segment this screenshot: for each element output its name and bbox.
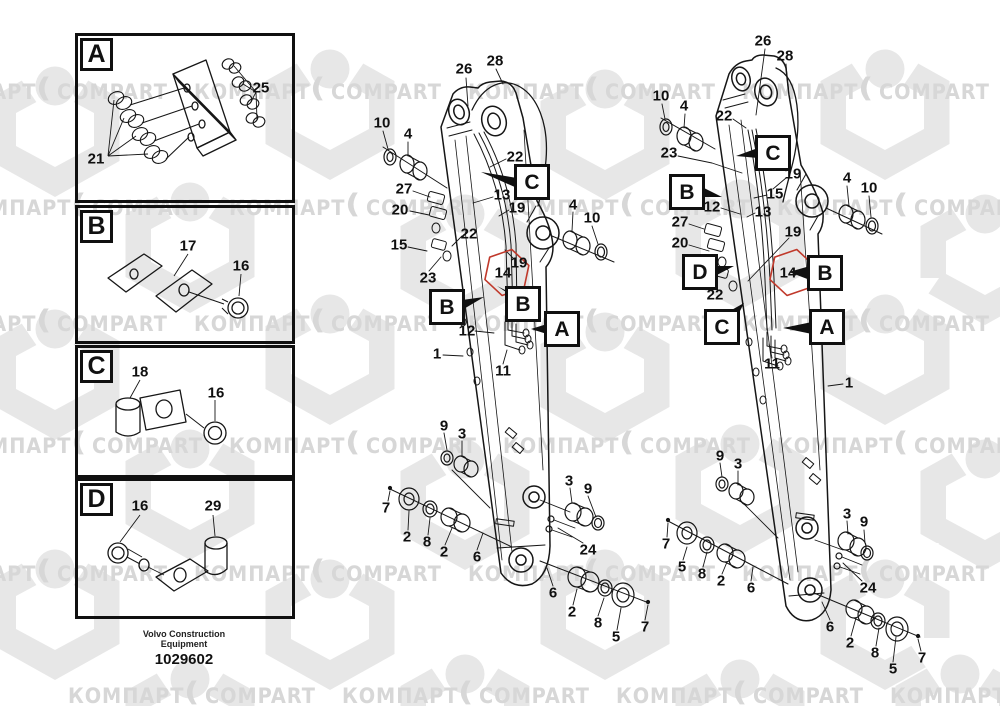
detail-d-part-16: 16 [132,498,149,515]
detail-a-part-21: 21 [88,151,105,168]
detail-letter-d: D [80,483,113,516]
detail-letter-a: A [80,38,113,71]
detail-d-part-29: 29 [205,498,222,515]
right-arm-pin-parts [660,118,920,641]
figure-number: 1029602 [118,651,250,668]
detail-box-d: D 1629 [75,478,295,619]
footer-block: Volvo Construction Equipment 1029602 [118,629,250,668]
detail-c-part-18: 18 [132,364,149,381]
detail-b-part-16: 16 [233,258,250,275]
parts-diagram-page: КОМПАРТ(COMPARTКОМПАРТ(COMPARTКОМПАРТ(CO… [0,0,1000,706]
left-arm-leader-lines [383,69,648,630]
detail-a-part-25: 25 [253,80,270,97]
detail-letter-b: B [80,210,113,243]
detail-b-part-17: 17 [180,238,197,255]
left-arm-body [441,81,559,586]
detail-box-b: B 1716 [75,205,295,344]
detail-letter-c: C [80,350,113,383]
brand-line-2: Equipment [118,639,250,649]
left-arm-pin-parts [383,147,650,607]
detail-box-c: C 1816 [75,345,295,478]
brand-line-1: Volvo Construction [118,629,250,639]
right-arm-body [716,55,831,621]
detail-c-part-16: 16 [208,385,225,402]
detail-box-a: A 2521 [75,33,295,203]
